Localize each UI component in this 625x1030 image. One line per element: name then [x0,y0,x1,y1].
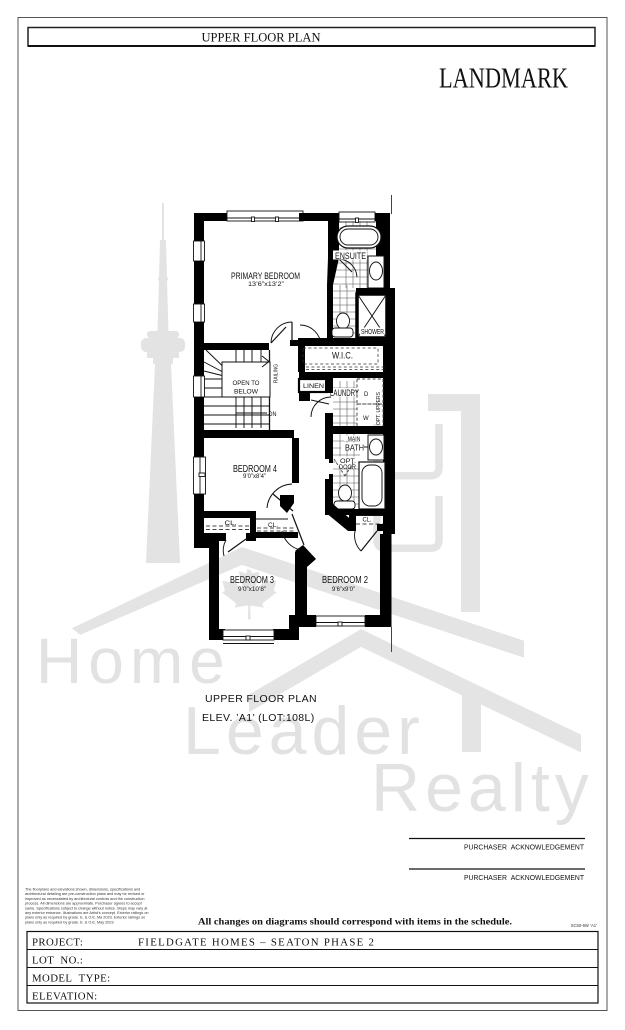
svg-text:BELOW: BELOW [234,389,259,396]
svg-text:13’6”x13’2”: 13’6”x13’2” [248,281,285,288]
svg-text:RAILING: RAILING [274,364,280,383]
svg-text:architectural detailing are pr: architectural detailing are pre-construc… [25,892,145,896]
svg-text:ELEVATION:: ELEVATION: [32,991,98,1003]
svg-text:MAIN: MAIN [348,436,361,443]
svg-text:9’0”x8’4”: 9’0”x8’4” [243,473,266,480]
svg-text:LAUNDRY: LAUNDRY [330,388,359,398]
svg-text:OPEN TO: OPEN TO [233,380,260,387]
svg-text:Realty: Realty [371,750,594,826]
svg-text:any exterior entrance. Illustr: any exterior entrance. Illustrations are… [25,911,149,915]
svg-text:plans only as required by grad: plans only as required by grade. E. & O.… [25,916,145,920]
svg-text:ELEV. ’A1’ (LOT:108L): ELEV. ’A1’ (LOT:108L) [202,712,315,724]
svg-text:improved as necessitated by ar: improved as necessitated by architectura… [25,897,144,901]
svg-text:All changes on diagrams should: All changes on diagrams should correspon… [198,917,512,927]
svg-text:FIELDGATE HOMES – SEATON PHASE: FIELDGATE HOMES – SEATON PHASE 2 [138,937,375,949]
svg-text:plans only as required by grad: plans only as required by grade. E. & O.… [25,920,114,924]
svg-text:W: W [363,416,369,422]
svg-text:9’6”x9’0”: 9’6”x9’0” [332,586,355,593]
svg-text:OPT. UPPERS: OPT. UPPERS [376,391,382,425]
svg-text:SHOWER: SHOWER [361,327,384,336]
svg-text:BEDROOM 2: BEDROOM 2 [322,575,368,586]
svg-text:BEDROOM 3: BEDROOM 3 [230,575,274,586]
svg-text:DOOR: DOOR [339,465,357,471]
svg-text:The floorplans and elevations: The floorplans and elevations shown, dim… [25,888,140,892]
svg-text:LINEN: LINEN [303,383,324,390]
svg-text:SC50-6W ’A1’: SC50-6W ’A1’ [571,923,597,928]
svg-text:MODEL TYPE:: MODEL TYPE: [32,973,111,985]
svg-text:W.I.C.: W.I.C. [332,351,353,361]
svg-text:DN: DN [269,412,277,418]
svg-text:LOT NO.:: LOT NO.: [32,955,83,967]
svg-text:Home: Home [36,625,231,697]
svg-text:LANDMARK: LANDMARK [439,63,568,95]
svg-text:process. All dimensions are ap: process. All dimensions are approximate.… [25,902,143,906]
svg-text:CL.: CL. [363,518,372,524]
svg-text:PURCHASER ACKNOWLEDGEMENT: PURCHASER ACKNOWLEDGEMENT [464,873,585,882]
svg-text:PROJECT:: PROJECT: [32,937,83,949]
svg-text:ENSUITE: ENSUITE [335,251,366,261]
svg-text:same. Specifications subject t: same. Specifications subject to change w… [25,906,148,910]
svg-text:PURCHASER ACKNOWLEDGEMENT: PURCHASER ACKNOWLEDGEMENT [464,843,585,852]
svg-text:CL.: CL. [225,520,237,527]
svg-text:9’0”x10’8”: 9’0”x10’8” [238,586,266,593]
svg-text:UPPER FLOOR PLAN: UPPER FLOOR PLAN [202,30,322,45]
svg-text:UPPER FLOOR PLAN: UPPER FLOOR PLAN [205,693,317,705]
svg-text:BATH: BATH [345,444,364,453]
svg-text:D: D [364,392,369,398]
